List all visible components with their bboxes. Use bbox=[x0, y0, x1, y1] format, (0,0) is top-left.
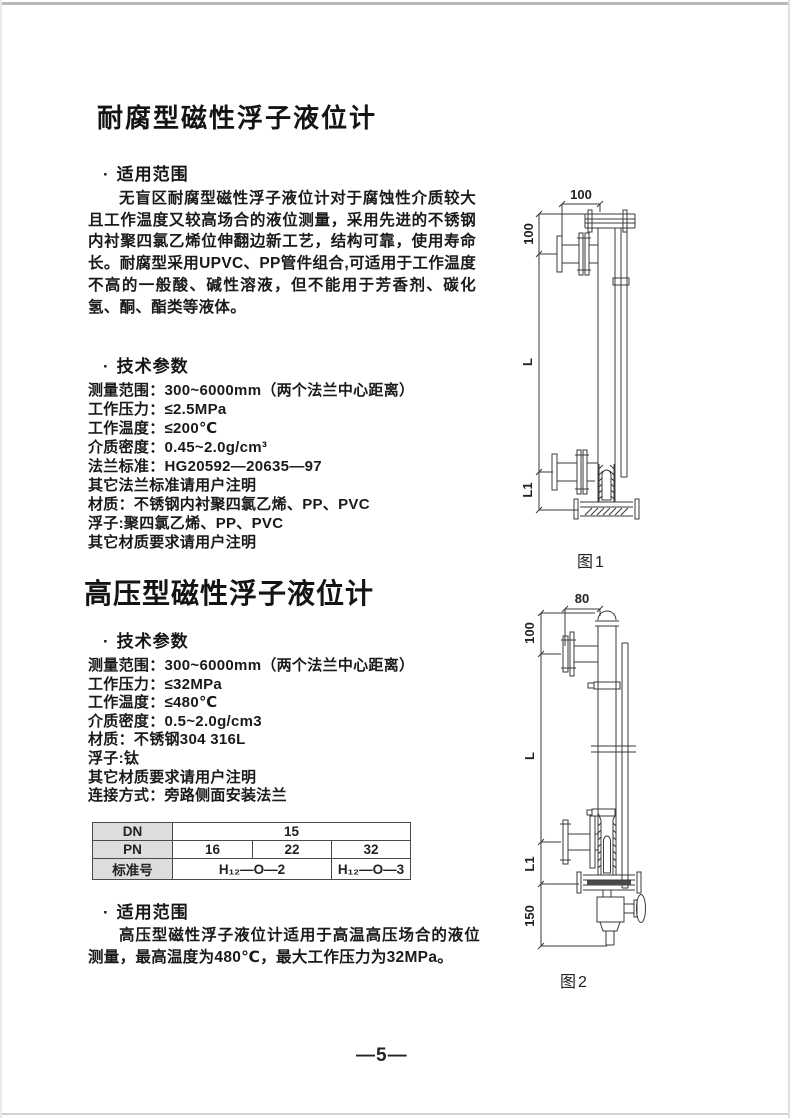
section1-params-heading: ·技术参数 bbox=[103, 352, 189, 377]
param-line: 其它法兰标准请用户注明 bbox=[88, 476, 483, 495]
dimension-label: L1 bbox=[522, 856, 537, 871]
figure2-lower-flange bbox=[560, 816, 599, 868]
param-line: 材质：不锈钢304 316L bbox=[88, 731, 483, 750]
param-line: 工作压力：≤32MPa bbox=[88, 676, 483, 695]
param-line: 其它材质要求请用户注明 bbox=[88, 769, 483, 788]
table-row-label: DN bbox=[93, 823, 173, 841]
section1-title: 耐腐型磁性浮子液位计 bbox=[97, 98, 377, 135]
table-cell-pn: 16 bbox=[173, 841, 253, 859]
param-line: 工作温度：≤480℃ bbox=[88, 694, 483, 713]
section2-params-heading: ·技术参数 bbox=[103, 627, 189, 652]
table-cell-standard: H₁₂—O—3 bbox=[332, 859, 411, 880]
figure1-main-tube bbox=[598, 228, 615, 502]
section2-scope-heading-label: 适用范围 bbox=[117, 903, 189, 922]
figure2-drain-valve bbox=[597, 890, 646, 945]
bullet-icon: · bbox=[103, 357, 110, 376]
table-cell-pn: 32 bbox=[332, 841, 411, 859]
figure1-caption: 图1 bbox=[577, 548, 606, 572]
page-number: —5— bbox=[356, 1045, 408, 1067]
section1-scope-heading-label: 适用范围 bbox=[117, 165, 189, 184]
table-cell-dn: 15 bbox=[173, 823, 411, 841]
dimension-label: L bbox=[522, 752, 537, 760]
table-row-label: PN bbox=[93, 841, 173, 859]
section2-scope-paragraph: 高压型磁性浮子液位计适用于高温高压场合的液位测量，最高温度为480℃，最大工作压… bbox=[88, 925, 480, 968]
dimension-label: 100 bbox=[522, 622, 537, 644]
figure2-main-tube bbox=[587, 611, 636, 875]
bullet-icon: · bbox=[103, 165, 110, 184]
dimension-label: L bbox=[520, 358, 535, 366]
figure1-lower-flange bbox=[552, 450, 598, 494]
figure1-float-chamber bbox=[599, 464, 614, 502]
section2-params-list: 测量范围：300~6000mm（两个法兰中心距离） 工作压力：≤32MPa 工作… bbox=[88, 657, 483, 806]
param-line: 测量范围：300~6000mm（两个法兰中心距离） bbox=[88, 381, 483, 400]
scan-edge-bottom bbox=[0, 1113, 790, 1115]
figure1-upper-flange bbox=[557, 233, 598, 275]
figure2-dim-left: 100 L L1 150 bbox=[522, 610, 607, 949]
param-line: 工作压力：≤2.5MPa bbox=[88, 400, 483, 419]
dimension-label: 150 bbox=[522, 905, 537, 927]
flange-spec-table: DN 15 PN 16 22 32 标准号 H₁₂—O—2 H₁₂—O—3 bbox=[92, 822, 411, 880]
section1-params-list: 测量范围：300~6000mm（两个法兰中心距离） 工作压力：≤2.5MPa 工… bbox=[88, 381, 483, 552]
table-cell-pn: 22 bbox=[253, 841, 332, 859]
figure1-drawing: 100 100 L L1 bbox=[495, 172, 685, 554]
dimension-label: 100 bbox=[521, 223, 536, 245]
param-line: 介质密度：0.5~2.0g/cm3 bbox=[88, 713, 483, 732]
dimension-label: 100 bbox=[570, 187, 592, 202]
bullet-icon: · bbox=[103, 903, 110, 922]
param-line: 介质密度：0.45~2.0g/cm³ bbox=[88, 438, 483, 457]
table-row: PN 16 22 32 bbox=[93, 841, 411, 859]
param-line: 连接方式：旁路侧面安装法兰 bbox=[88, 787, 483, 806]
param-line: 其它材质要求请用户注明 bbox=[88, 533, 483, 552]
section1-params-heading-label: 技术参数 bbox=[117, 357, 189, 376]
document-page: 耐腐型磁性浮子液位计 ·适用范围 无盲区耐腐型磁性浮子液位计对于腐蚀性介质较大且… bbox=[0, 0, 790, 1118]
param-line: 测量范围：300~6000mm（两个法兰中心距离） bbox=[88, 657, 483, 676]
figure2-drawing: 80 100 L L1 150 bbox=[495, 588, 685, 966]
param-line: 浮子:钛 bbox=[88, 750, 483, 769]
section2-params-heading-label: 技术参数 bbox=[117, 632, 189, 651]
scan-edge-top bbox=[0, 2, 790, 5]
table-row: DN 15 bbox=[93, 823, 411, 841]
dimension-label: L1 bbox=[520, 482, 535, 497]
section1-scope-paragraph: 无盲区耐腐型磁性浮子液位计对于腐蚀性介质较大且工作温度又较高场合的液位测量，采用… bbox=[88, 188, 476, 318]
table-cell-standard: H₁₂—O—2 bbox=[173, 859, 332, 880]
figure2-float-chamber bbox=[598, 813, 616, 875]
param-line: 材质：不锈钢内衬聚四氯乙烯、PP、PVC bbox=[88, 495, 483, 514]
table-row-label: 标准号 bbox=[93, 859, 173, 880]
param-line: 工作温度：≤200℃ bbox=[88, 419, 483, 438]
figure2-caption: 图2 bbox=[560, 968, 589, 992]
table-row: 标准号 H₁₂—O—2 H₁₂—O—3 bbox=[93, 859, 411, 880]
figure2-bottom-flange bbox=[577, 872, 641, 893]
param-line: 浮子:聚四氯乙烯、PP、PVC bbox=[88, 514, 483, 533]
figure1-bottom-flange bbox=[574, 499, 639, 519]
section1-scope-heading: ·适用范围 bbox=[103, 160, 189, 185]
dimension-label: 80 bbox=[575, 591, 589, 606]
section2-scope-heading: ·适用范围 bbox=[103, 898, 189, 923]
figure2-indicator-tube bbox=[622, 643, 628, 888]
figure2-upper-flange bbox=[561, 632, 598, 676]
section2-title: 高压型磁性浮子液位计 bbox=[84, 572, 374, 612]
bullet-icon: · bbox=[103, 632, 110, 651]
param-line: 法兰标准：HG20592—20635—97 bbox=[88, 457, 483, 476]
scan-edge-left bbox=[0, 0, 2, 1118]
